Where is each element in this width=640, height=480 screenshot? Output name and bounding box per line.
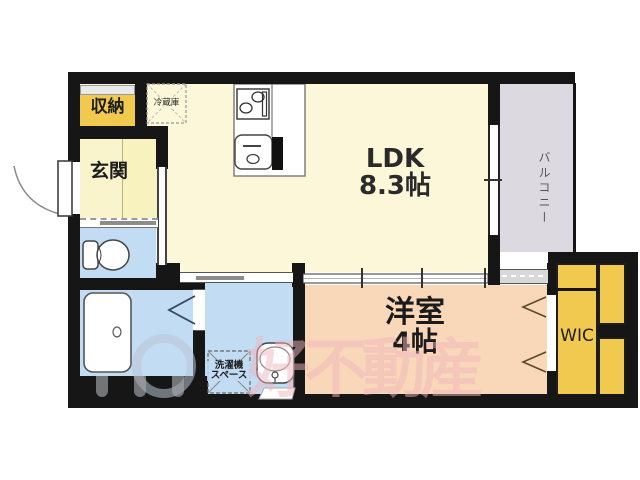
toilet-icon bbox=[82, 234, 132, 276]
refrigerator-box: 冷蔵庫 bbox=[146, 83, 187, 124]
wic-folddoor-icon bbox=[520, 294, 547, 376]
wall-ldk-right-upper bbox=[488, 72, 500, 125]
wall-bottom-left bbox=[68, 376, 208, 396]
wic-closet-upper bbox=[598, 263, 626, 325]
wic-label: WIC bbox=[556, 328, 598, 346]
shunou-door bbox=[80, 85, 135, 95]
wall-under-shunou bbox=[68, 126, 168, 139]
floor-plan: 冷蔵庫 洗濯機 bbox=[0, 0, 640, 480]
balcony-window-mid bbox=[484, 179, 502, 181]
western-room-window-dashes bbox=[502, 275, 546, 277]
balcony-right-border bbox=[573, 83, 576, 252]
ldk-label: LDK 8.3帖 bbox=[340, 146, 450, 201]
wall-left-lower bbox=[68, 214, 80, 396]
bathtub-icon bbox=[83, 292, 133, 374]
western-room-label: 洋室 4帖 bbox=[360, 297, 470, 357]
toilet-door-panel bbox=[100, 221, 156, 225]
refrigerator-label: 冷蔵庫 bbox=[148, 99, 185, 108]
genkan-label: 玄関 bbox=[78, 162, 140, 182]
western-room-name: 洋室 bbox=[360, 297, 470, 329]
wic-door bbox=[547, 295, 556, 371]
wic-divider-wall bbox=[598, 325, 626, 337]
washroom-door-panel bbox=[196, 276, 244, 280]
wall-ldk-right-lower bbox=[488, 235, 500, 285]
wall-toilet-bath bbox=[68, 278, 195, 290]
western-room-size: 4帖 bbox=[360, 329, 470, 357]
balcony-label: バルコニー bbox=[524, 138, 550, 238]
wall-hall-step bbox=[156, 139, 168, 169]
wic-shelf-line bbox=[556, 288, 598, 291]
laundry-label: 洗濯機 スペース bbox=[207, 361, 251, 381]
washbasin-icon bbox=[256, 342, 296, 400]
wic-closet-lower bbox=[598, 337, 626, 397]
wall-right-outer bbox=[626, 255, 638, 408]
bathroom-folddoor-icon bbox=[166, 294, 196, 326]
kitchen-icon bbox=[233, 84, 306, 177]
ldk-name: LDK bbox=[340, 146, 450, 173]
ldk-size: 8.3帖 bbox=[340, 173, 450, 200]
laundry-box: 洗濯機 スペース bbox=[207, 350, 251, 394]
shunou-label: 収納 bbox=[80, 99, 135, 117]
wall-left-upper bbox=[68, 72, 80, 162]
partition-sliding-doors bbox=[303, 266, 488, 290]
wall-balcony-bottom bbox=[548, 252, 638, 263]
hall-sliding-door bbox=[157, 167, 167, 265]
entrance-door-icon bbox=[8, 158, 80, 220]
